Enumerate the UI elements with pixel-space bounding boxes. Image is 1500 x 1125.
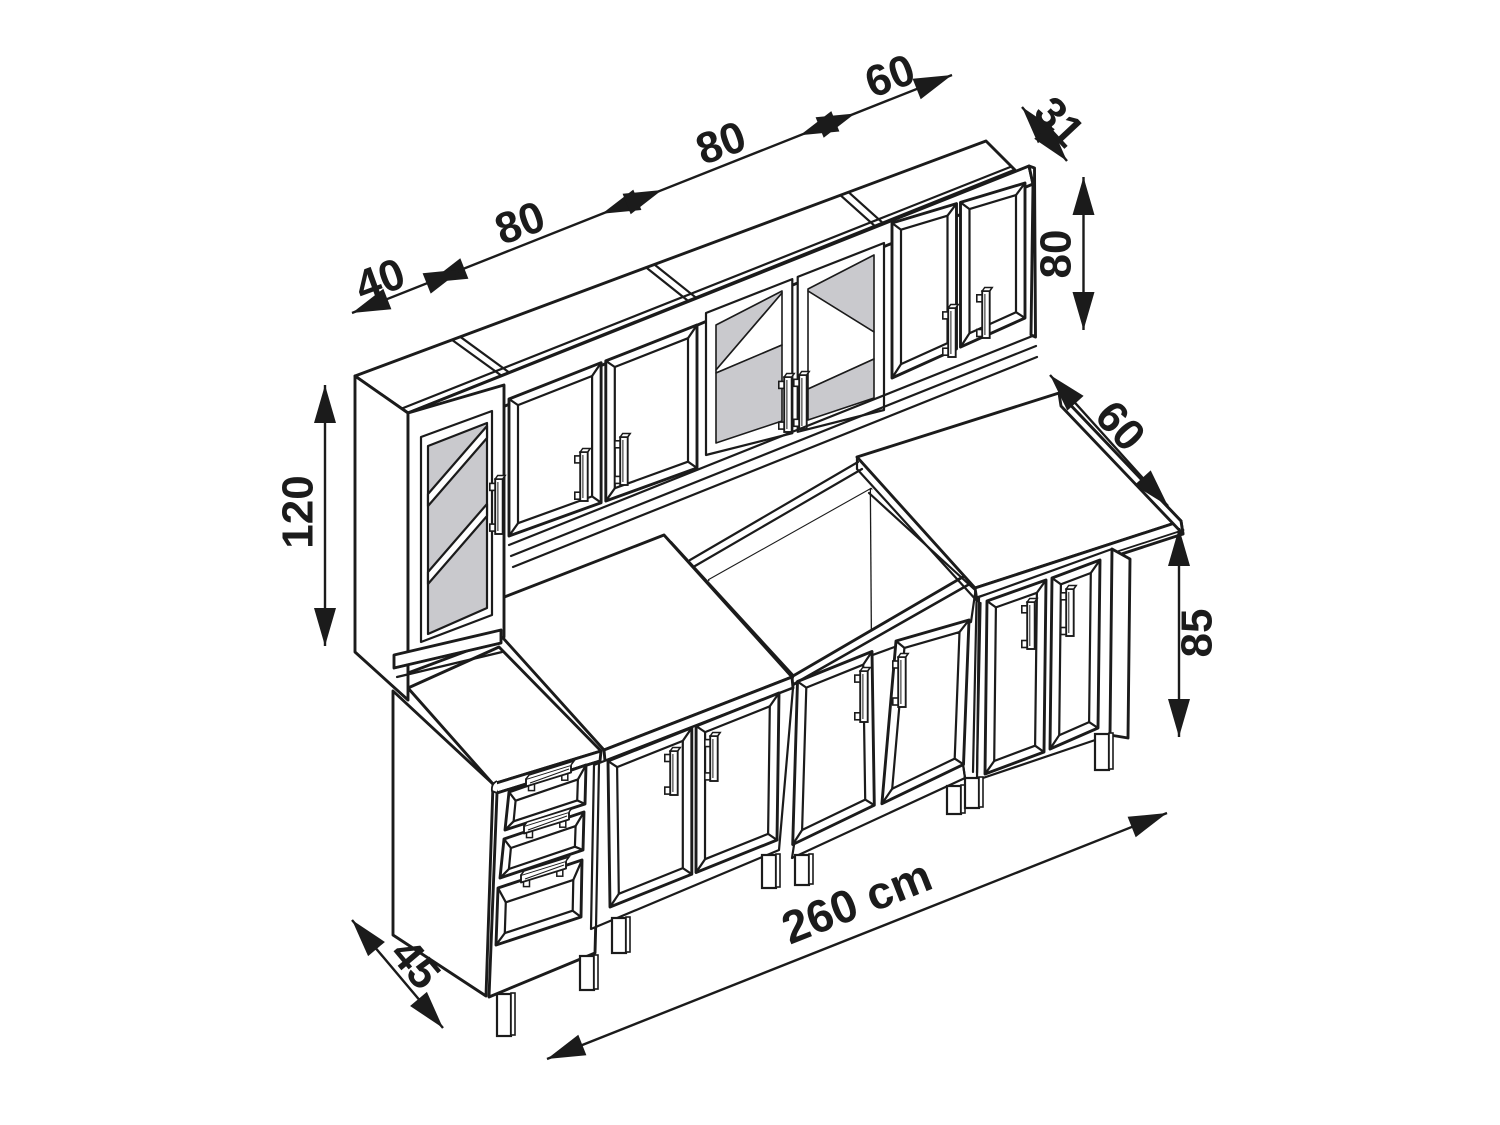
svg-text:85: 85 <box>1173 609 1222 658</box>
svg-text:80: 80 <box>1032 230 1081 279</box>
svg-text:120: 120 <box>274 475 323 548</box>
